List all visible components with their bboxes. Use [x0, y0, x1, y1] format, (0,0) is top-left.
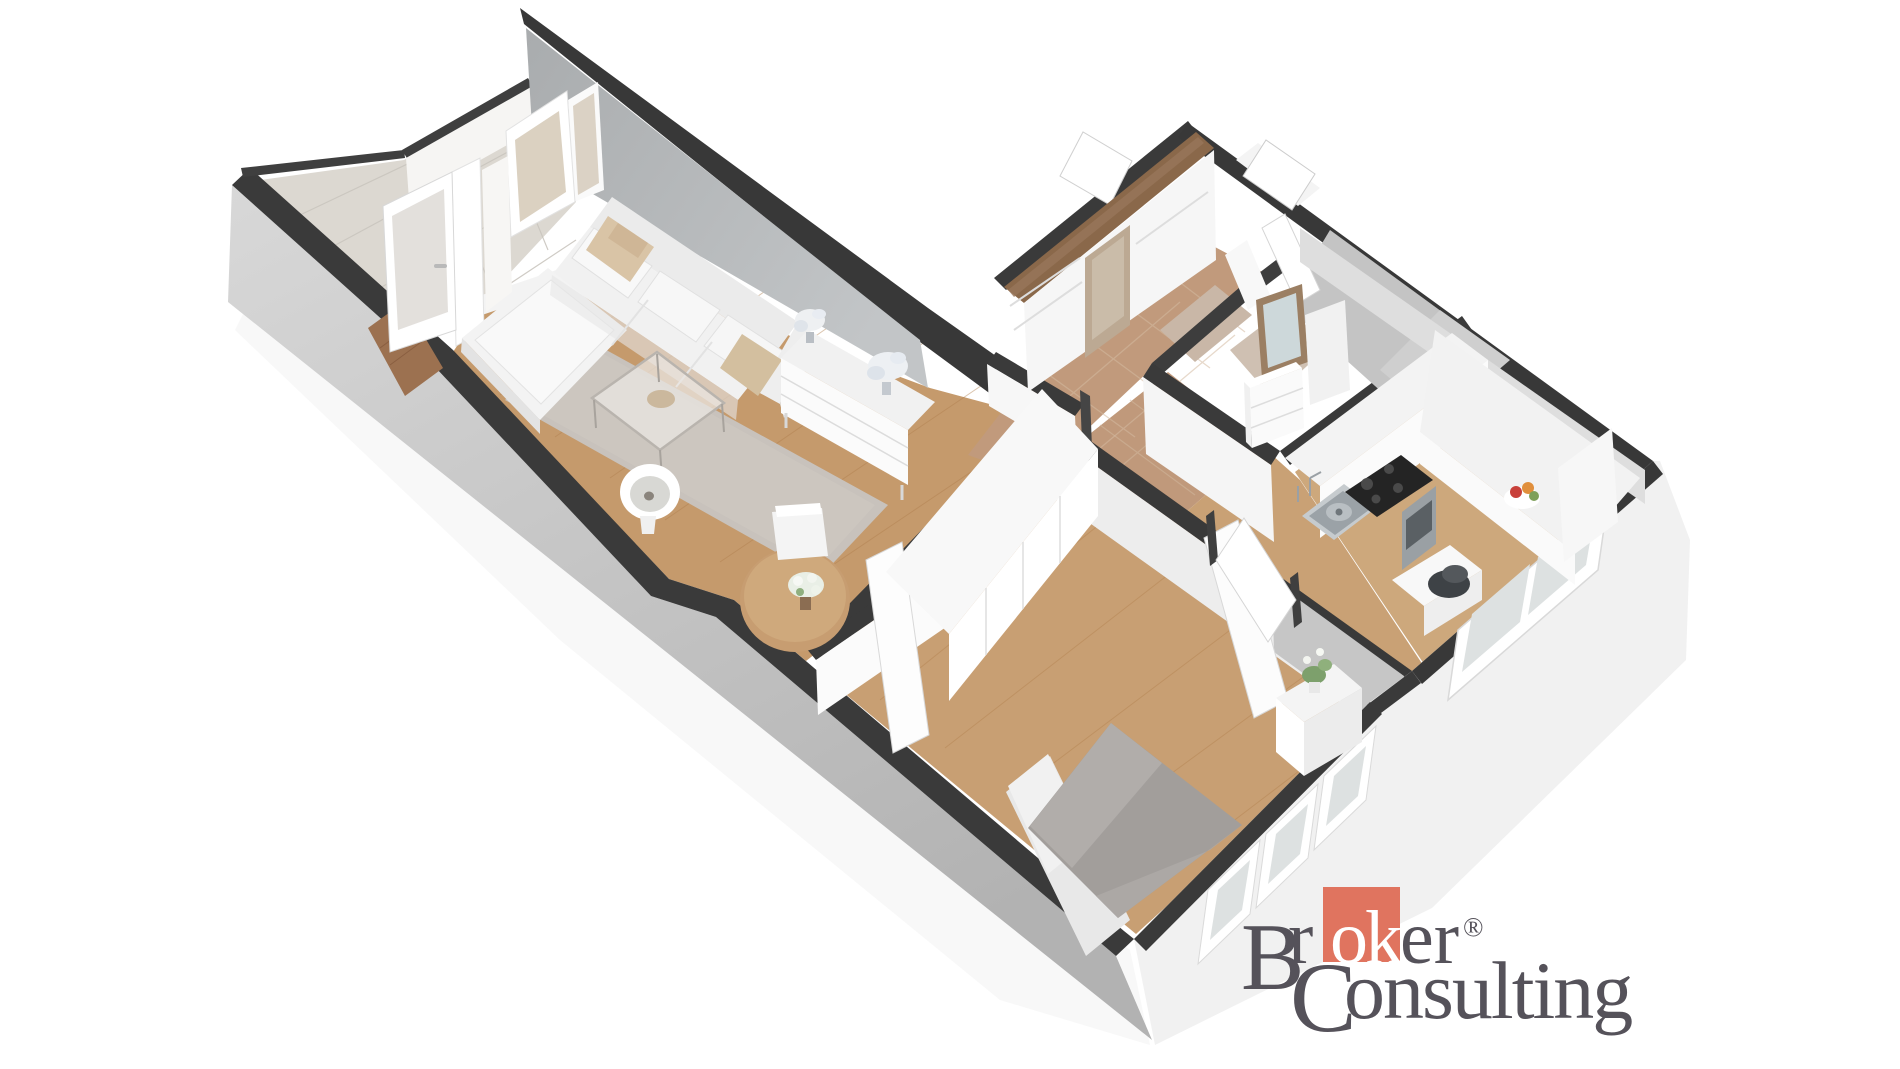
svg-text:®: ®: [1463, 912, 1484, 942]
svg-text:onsulting: onsulting: [1344, 945, 1632, 1036]
